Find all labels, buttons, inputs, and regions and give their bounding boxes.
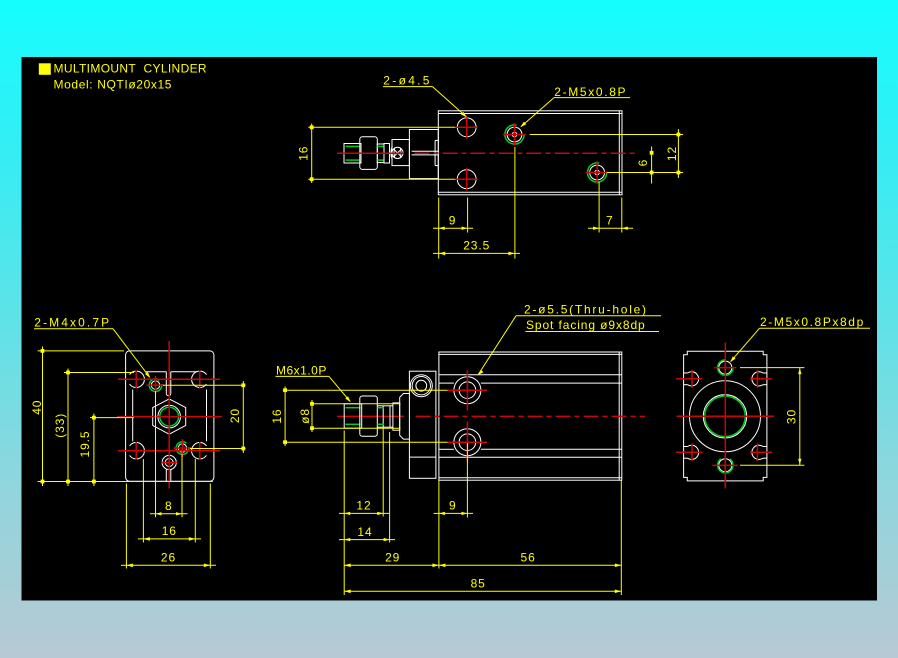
svg-text:9: 9 xyxy=(449,213,457,227)
svg-text:ø8: ø8 xyxy=(298,408,312,424)
svg-text:12: 12 xyxy=(356,499,371,513)
svg-text:2-M5x0.8Px8dp: 2-M5x0.8Px8dp xyxy=(760,315,865,329)
svg-text:2-M4x0.7P: 2-M4x0.7P xyxy=(34,315,111,329)
svg-text:19.5: 19.5 xyxy=(78,431,92,458)
svg-text:56: 56 xyxy=(521,551,536,565)
svg-text:9: 9 xyxy=(449,499,457,513)
svg-text:7: 7 xyxy=(606,213,614,227)
svg-text:14: 14 xyxy=(357,525,372,539)
svg-text:85: 85 xyxy=(471,577,486,591)
svg-text:12: 12 xyxy=(665,146,679,161)
svg-text:16: 16 xyxy=(270,409,284,424)
svg-text:Spot facing ø9x8dp: Spot facing ø9x8dp xyxy=(526,318,646,332)
svg-text:30: 30 xyxy=(785,409,799,424)
svg-text:6: 6 xyxy=(636,159,650,167)
svg-text:16: 16 xyxy=(297,146,311,161)
svg-text:23.5: 23.5 xyxy=(463,239,490,253)
svg-text:29: 29 xyxy=(385,551,400,565)
svg-text:2-ø4.5: 2-ø4.5 xyxy=(383,73,431,87)
svg-text:M6x1.0P: M6x1.0P xyxy=(276,363,327,377)
svg-text:2-M5x0.8P: 2-M5x0.8P xyxy=(554,85,627,99)
svg-text:16: 16 xyxy=(162,524,177,538)
svg-text:Model: NQTIø20x15: Model: NQTIø20x15 xyxy=(54,78,173,92)
svg-text:(33): (33) xyxy=(53,413,67,438)
svg-text:MULTIMOUNT CYLINDER: MULTIMOUNT CYLINDER xyxy=(54,61,207,75)
svg-text:40: 40 xyxy=(30,400,44,415)
svg-text:8: 8 xyxy=(165,499,173,513)
svg-text:20: 20 xyxy=(228,408,242,423)
svg-text:2-ø5.5(Thru-hole): 2-ø5.5(Thru-hole) xyxy=(524,302,648,316)
svg-text:26: 26 xyxy=(161,551,176,565)
